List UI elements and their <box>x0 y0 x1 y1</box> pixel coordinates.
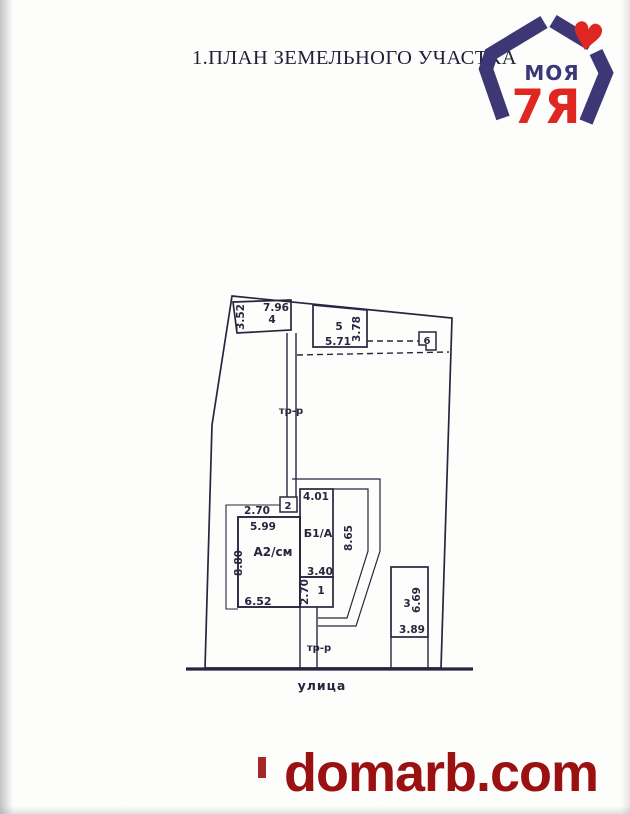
watermark: domarb.com <box>284 742 598 804</box>
b3-dim-right: 6.69 <box>411 587 423 613</box>
b4-label: 4 <box>268 314 275 326</box>
b2-label: 2 <box>285 501 292 512</box>
yard-fence-inner <box>318 489 368 618</box>
agency-logo: ♥ МОЯ 7Я <box>458 6 630 148</box>
house-dim-bottom: 6.52 <box>244 595 271 608</box>
porch-dim-top: 2.70 <box>244 505 270 517</box>
house-dim-top: 5.99 <box>250 521 276 533</box>
b1a-dim-right: 8.65 <box>343 525 355 551</box>
land-plot-plan: 7.96 4 3.52 5 5.71 3.78 6 тр-р 2 2.70 5.… <box>170 285 480 700</box>
room1-label: 1 <box>317 585 324 597</box>
b5-label: 5 <box>335 321 342 333</box>
house-dim-left: 8.80 <box>233 550 245 576</box>
b1a-label: Б1/А <box>304 527 333 540</box>
scan-shadow-bottom <box>0 806 630 814</box>
b4-dim-left: 3.52 <box>235 304 247 330</box>
lower-path-label: тр-р <box>307 643 331 654</box>
upper-path-label: тр-р <box>279 406 303 417</box>
b6-label: 6 <box>424 336 431 347</box>
b4-dim-top: 7.96 <box>263 302 289 314</box>
room1-dim-left: 2.70 <box>299 579 311 605</box>
dashed-line-long <box>297 352 449 355</box>
b1a-dim-bottom: 3.40 <box>307 566 333 578</box>
logo-word-main: 7Я <box>512 80 581 135</box>
b3-dim-bottom: 3.89 <box>399 624 425 636</box>
b5-dim-bottom: 5.71 <box>325 336 351 348</box>
watermark-fragment <box>258 757 266 778</box>
b5-dim-right: 3.78 <box>351 316 363 342</box>
street-label: улица <box>298 678 347 693</box>
b1a-dim-top: 4.01 <box>303 491 329 503</box>
scan-shadow-left <box>0 0 13 814</box>
house-label: А2/см <box>254 545 293 559</box>
logo-house-right-arm <box>586 52 606 122</box>
b3-label: 3 <box>403 598 410 610</box>
